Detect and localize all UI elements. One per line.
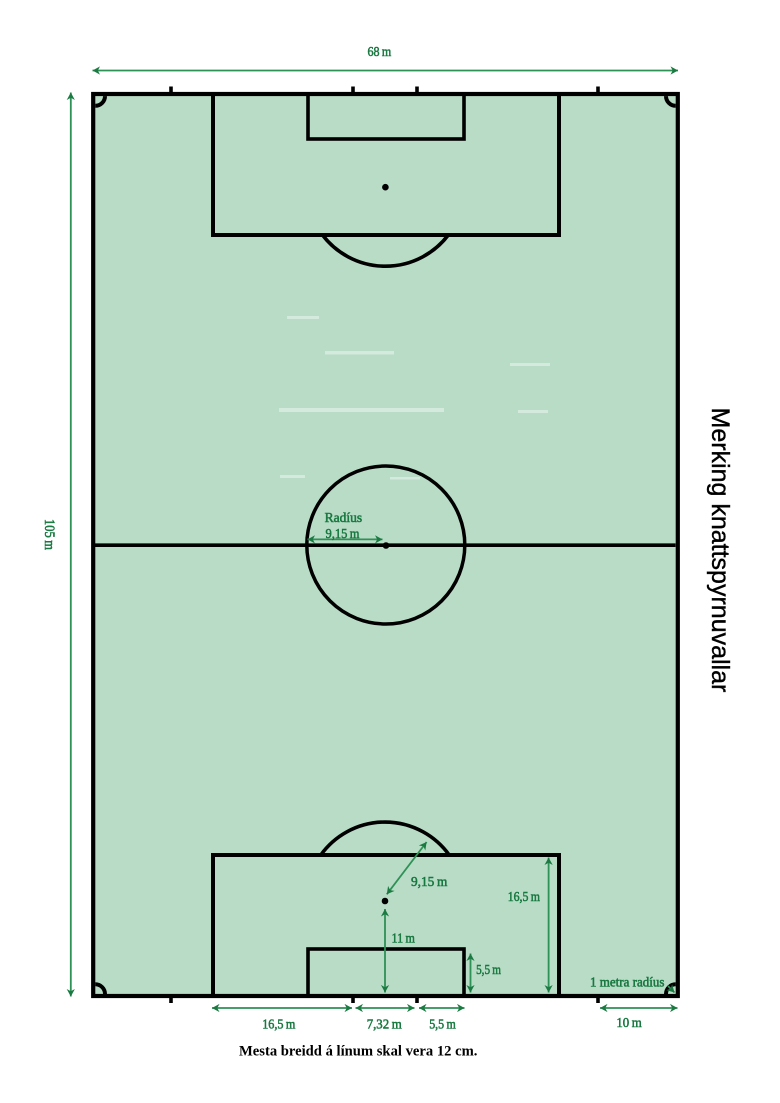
svg-text:5,5 m: 5,5 m <box>476 963 501 978</box>
svg-text:68 m: 68 m <box>368 45 392 60</box>
svg-text:1 metra radíus: 1 metra radíus <box>590 975 665 990</box>
svg-text:5,5 m: 5,5 m <box>429 1018 456 1033</box>
svg-text:16,5 m: 16,5 m <box>508 890 540 905</box>
svg-text:10 m: 10 m <box>616 1016 641 1031</box>
svg-text:7,32 m: 7,32 m <box>367 1018 402 1033</box>
svg-text:Mesta breidd á línum skal vera: Mesta breidd á línum skal vera 12 cm. <box>239 1044 478 1060</box>
svg-text:9,15 m: 9,15 m <box>411 875 447 890</box>
svg-text:9,15 m: 9,15 m <box>326 527 360 542</box>
svg-text:16,5 m: 16,5 m <box>262 1018 295 1033</box>
svg-text:Radíus: Radíus <box>325 511 363 526</box>
svg-text:11 m: 11 m <box>392 932 415 947</box>
svg-text:105 m: 105 m <box>41 519 57 551</box>
svg-text:Merking knattspyrnuvallar: Merking knattspyrnuvallar <box>706 408 734 693</box>
